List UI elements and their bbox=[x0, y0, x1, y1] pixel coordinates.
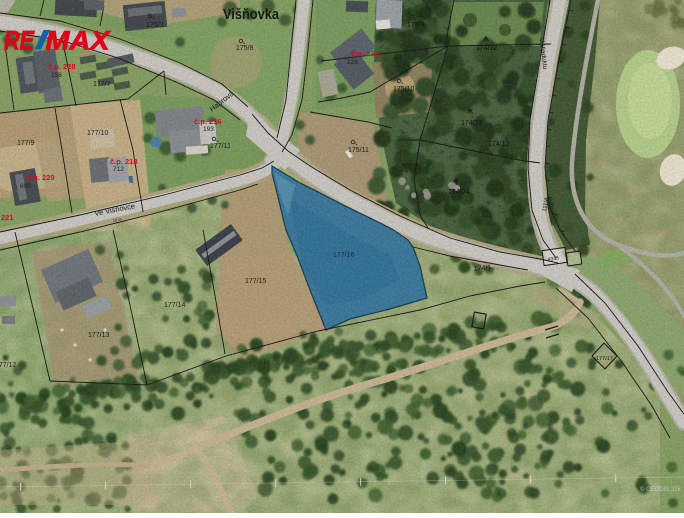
svg-text:RE: RE bbox=[4, 26, 35, 56]
svg-text:MAX: MAX bbox=[46, 26, 112, 56]
